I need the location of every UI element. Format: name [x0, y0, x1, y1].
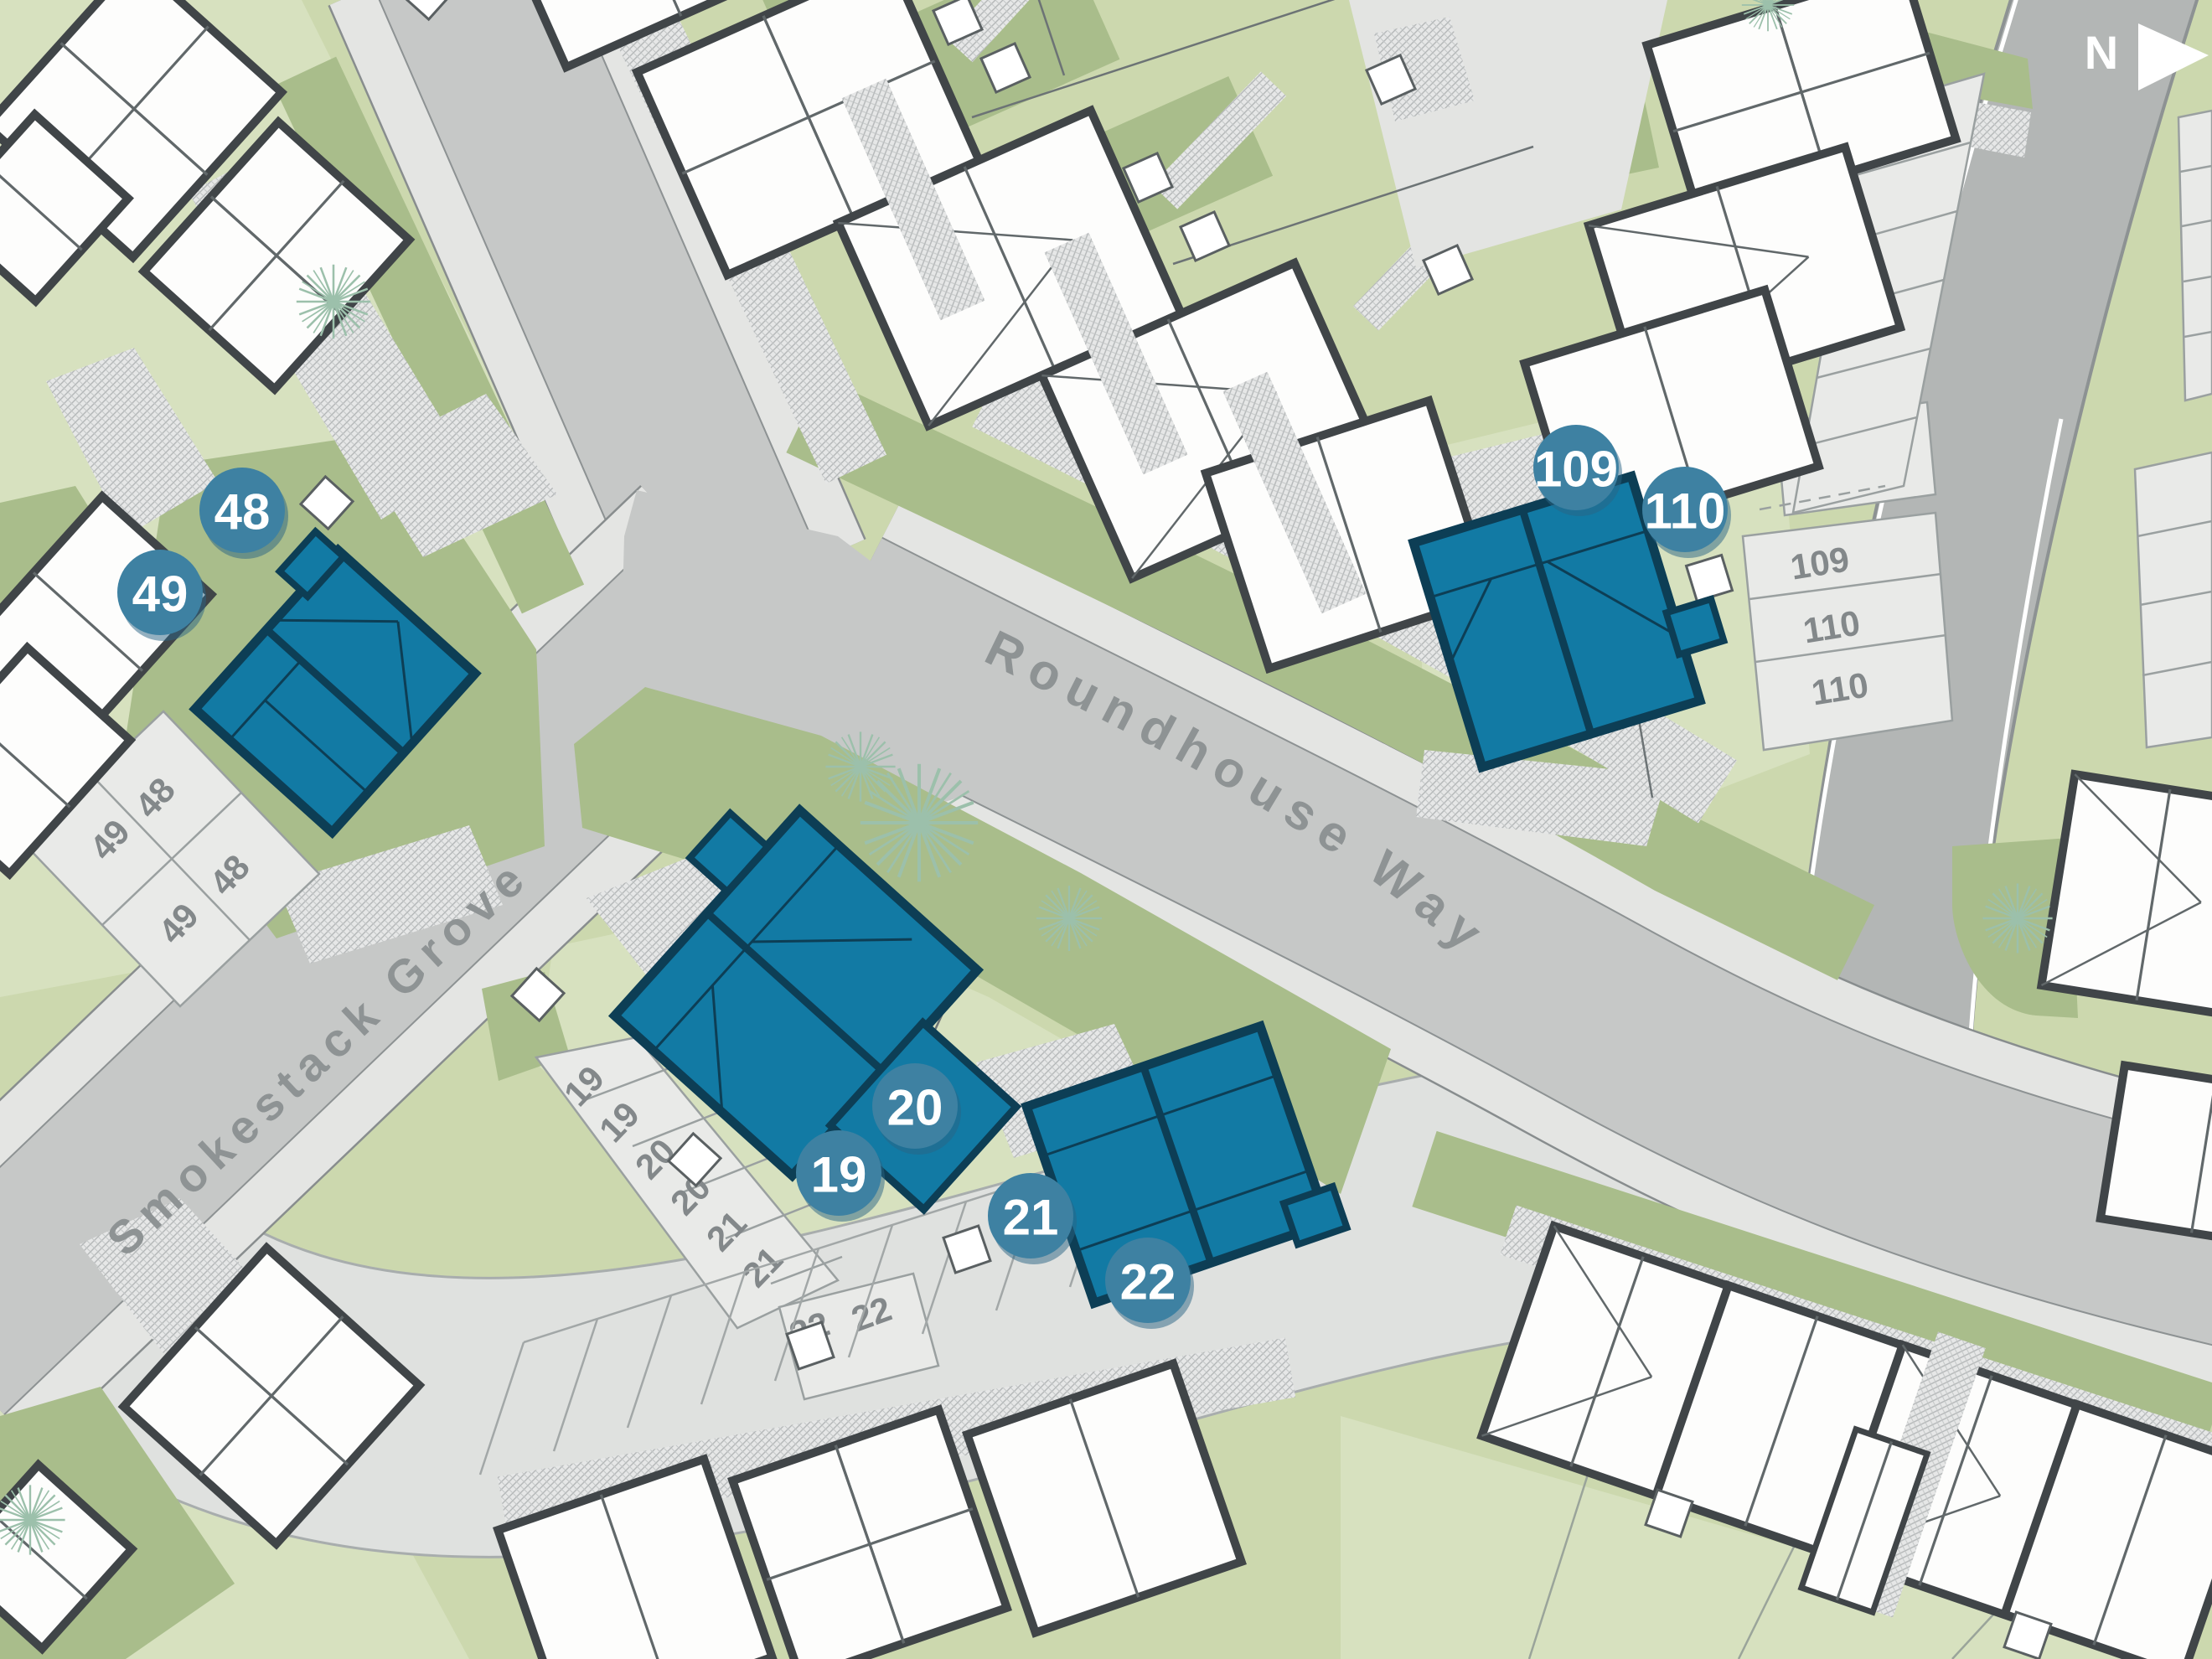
- svg-text:19: 19: [811, 1147, 867, 1203]
- svg-text:48: 48: [214, 484, 271, 540]
- svg-text:20: 20: [887, 1080, 943, 1136]
- svg-text:N: N: [2085, 26, 2118, 79]
- svg-text:21: 21: [1003, 1190, 1059, 1246]
- svg-text:109: 109: [1534, 442, 1618, 498]
- svg-text:110: 110: [1645, 483, 1726, 540]
- svg-text:49: 49: [132, 566, 189, 623]
- svg-text:22: 22: [1120, 1254, 1176, 1310]
